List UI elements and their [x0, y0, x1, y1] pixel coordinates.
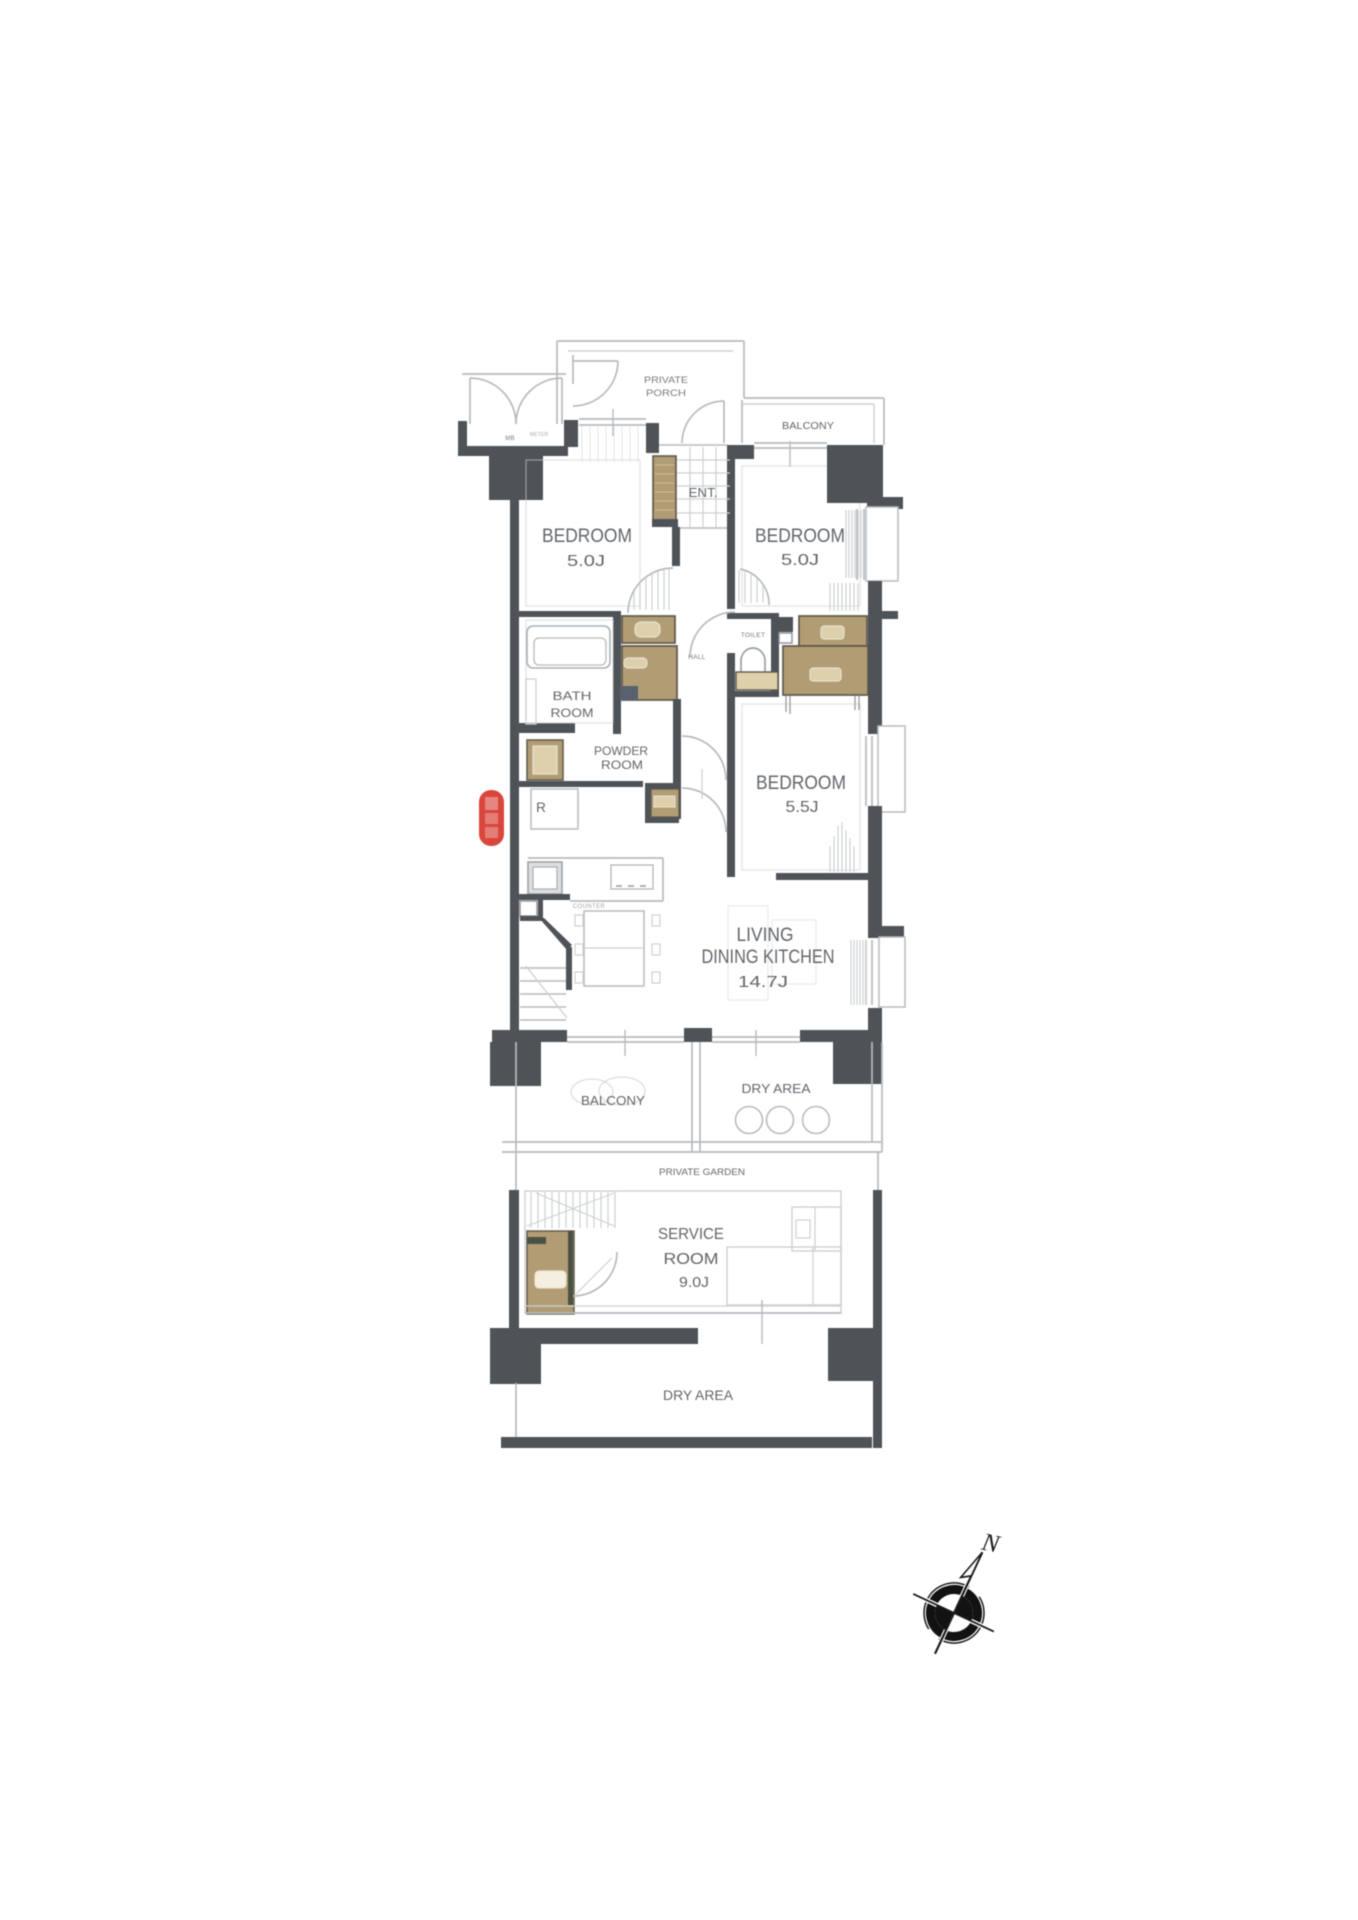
svg-text:5.0J: 5.0J: [567, 553, 605, 570]
svg-text:METER: METER: [530, 432, 549, 438]
svg-text:MB: MB: [505, 436, 515, 442]
svg-text:PORCH: PORCH: [646, 388, 686, 399]
svg-text:LIVING: LIVING: [737, 925, 794, 946]
svg-text:BATH: BATH: [553, 689, 592, 703]
svg-text:ENT.: ENT.: [689, 485, 718, 500]
svg-text:BALCONY: BALCONY: [782, 420, 834, 432]
svg-text:TOILET: TOILET: [741, 632, 765, 639]
svg-text:DRY AREA: DRY AREA: [663, 1388, 733, 1403]
svg-text:BEDROOM: BEDROOM: [542, 526, 632, 547]
svg-text:HALL: HALL: [688, 654, 706, 661]
svg-text:SERVICE: SERVICE: [658, 1226, 724, 1243]
svg-text:DRY AREA: DRY AREA: [742, 1082, 812, 1096]
svg-text:5.5J: 5.5J: [786, 799, 819, 816]
svg-text:BEDROOM: BEDROOM: [756, 773, 846, 794]
svg-text:ROOM: ROOM: [551, 706, 594, 720]
svg-text:9.0J: 9.0J: [679, 1274, 709, 1291]
svg-text:ROOM: ROOM: [664, 1251, 719, 1268]
svg-text:R: R: [536, 800, 546, 815]
svg-text:ROOM: ROOM: [601, 758, 643, 772]
svg-text:POWDER: POWDER: [594, 744, 648, 758]
svg-text:14.7J: 14.7J: [738, 974, 788, 991]
svg-text:PRIVATE GARDEN: PRIVATE GARDEN: [659, 1167, 745, 1178]
svg-text:COUNTER: COUNTER: [573, 904, 606, 910]
svg-text:BALCONY: BALCONY: [581, 1094, 646, 1108]
svg-text:BEDROOM: BEDROOM: [755, 526, 845, 547]
svg-text:5.0J: 5.0J: [781, 552, 819, 569]
svg-text:DINING KITCHEN: DINING KITCHEN: [702, 947, 835, 968]
svg-text:PRIVATE: PRIVATE: [644, 375, 688, 386]
